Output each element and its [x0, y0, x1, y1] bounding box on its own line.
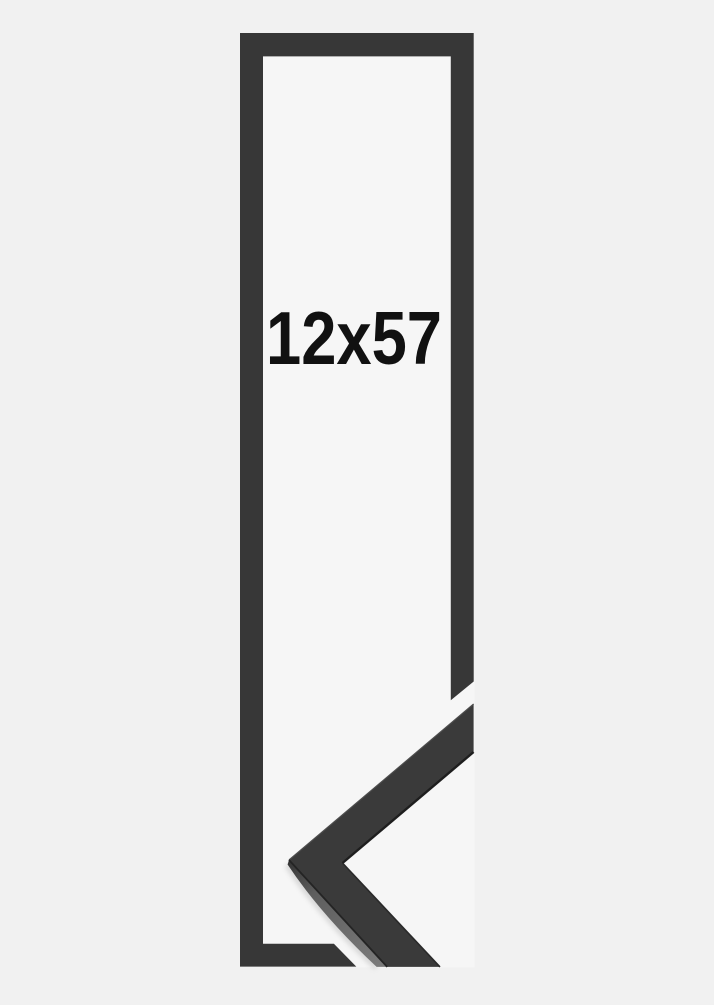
svg-text:12x57: 12x57: [266, 296, 442, 380]
